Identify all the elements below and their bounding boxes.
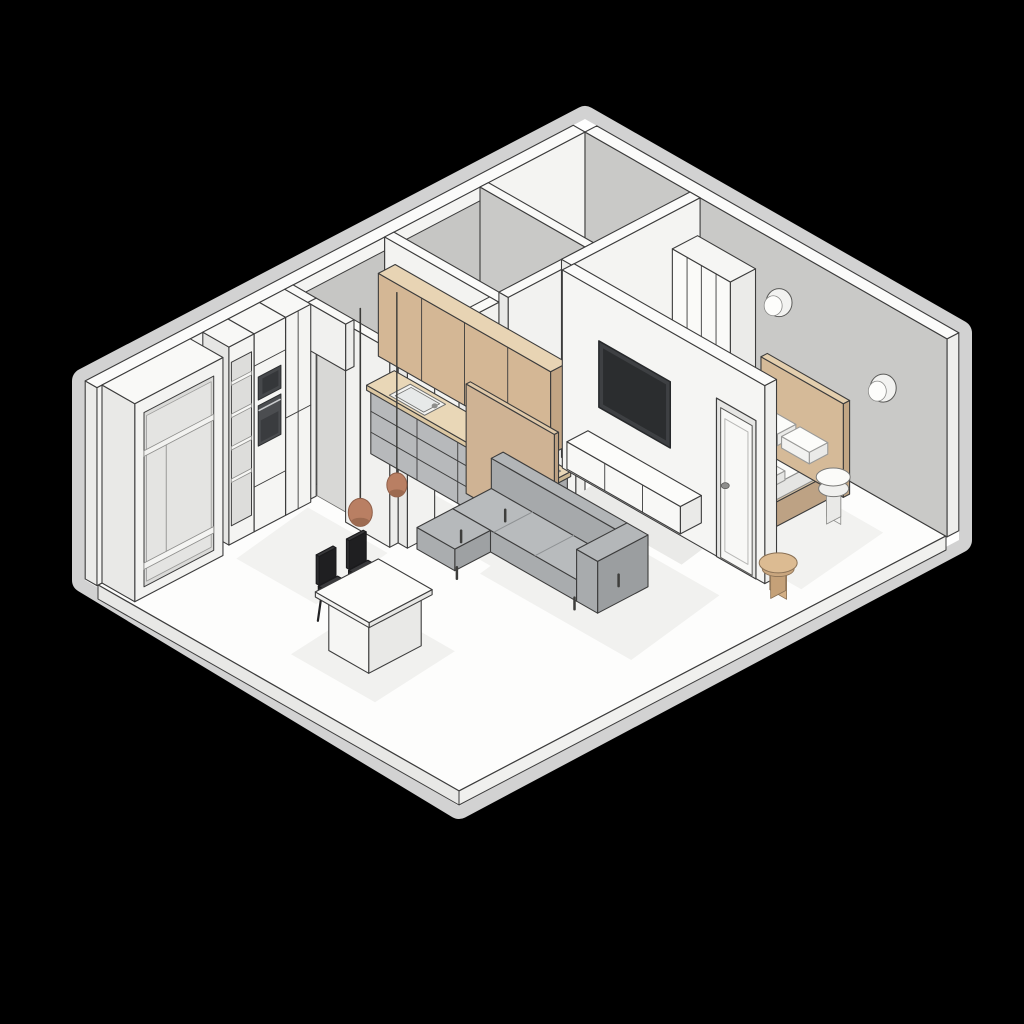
wall-sconce-2-knob — [868, 381, 886, 401]
bedside-stool-disc-top — [816, 468, 850, 486]
wall-sconce-1-knob — [764, 296, 782, 316]
side-stool-top — [759, 553, 797, 573]
apartment-isometric-rendering — [0, 0, 1024, 1024]
pendant-lamp-2-rim — [389, 489, 404, 496]
door-leaf — [721, 408, 753, 576]
kitchen-faucet — [432, 403, 438, 408]
screenshot-canvas — [0, 0, 1024, 1024]
door-handle — [721, 483, 729, 489]
pendant-lamp-1-rim — [351, 518, 369, 526]
